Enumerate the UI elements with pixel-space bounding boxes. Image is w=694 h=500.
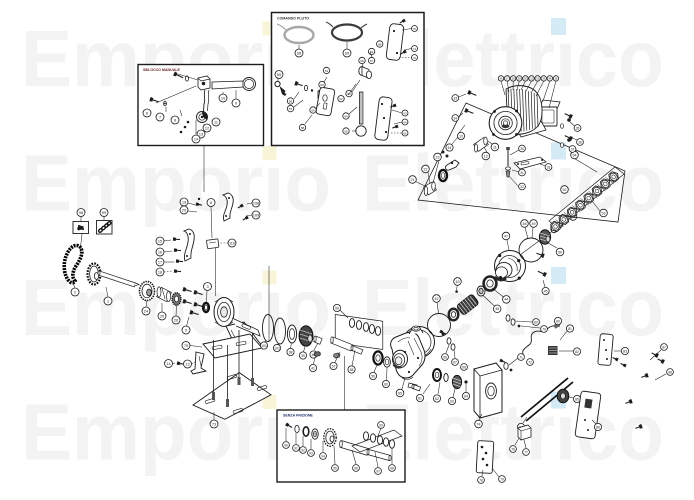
svg-text:32: 32 — [520, 185, 524, 189]
svg-text:79: 79 — [500, 477, 504, 481]
svg-text:68: 68 — [378, 42, 382, 46]
svg-text:57: 57 — [289, 107, 293, 111]
svg-text:76: 76 — [511, 447, 515, 451]
svg-text:72: 72 — [528, 360, 532, 364]
svg-text:63: 63 — [403, 111, 407, 115]
svg-text:109: 109 — [253, 213, 259, 217]
svg-text:41: 41 — [311, 366, 315, 370]
svg-text:20: 20 — [182, 208, 186, 212]
svg-text:78: 78 — [479, 478, 483, 482]
svg-text:49: 49 — [531, 222, 535, 226]
svg-text:99: 99 — [102, 211, 106, 215]
svg-text:70: 70 — [413, 27, 417, 31]
svg-text:62: 62 — [339, 97, 343, 101]
svg-text:24: 24 — [144, 309, 148, 313]
svg-text:34: 34 — [454, 116, 458, 120]
svg-text:30: 30 — [520, 147, 524, 151]
svg-text:35: 35 — [576, 126, 580, 130]
svg-text:48: 48 — [522, 222, 526, 226]
svg-text:64: 64 — [344, 114, 348, 118]
svg-text:31: 31 — [520, 171, 524, 175]
svg-text:88: 88 — [668, 370, 672, 374]
svg-text:33: 33 — [547, 165, 551, 169]
svg-text:99: 99 — [379, 423, 383, 427]
svg-text:53: 53 — [601, 211, 605, 215]
svg-text:18: 18 — [158, 270, 162, 274]
svg-text:73: 73 — [212, 422, 216, 426]
svg-text:69: 69 — [534, 320, 538, 324]
svg-text:67: 67 — [370, 59, 374, 63]
svg-text:11: 11 — [493, 145, 497, 149]
svg-text:68: 68 — [462, 365, 466, 369]
svg-text:72: 72 — [413, 56, 417, 60]
svg-text:87: 87 — [662, 345, 666, 349]
svg-text:3: 3 — [206, 285, 208, 289]
svg-text:6: 6 — [146, 111, 148, 115]
svg-text:13: 13 — [185, 362, 189, 366]
svg-text:14: 14 — [194, 137, 198, 141]
svg-text:54: 54 — [572, 153, 576, 157]
svg-text:71: 71 — [413, 47, 417, 51]
svg-text:63: 63 — [450, 399, 454, 403]
svg-text:45: 45 — [495, 307, 499, 311]
svg-text:69: 69 — [345, 51, 349, 55]
svg-text:58: 58 — [301, 126, 305, 130]
svg-text:108: 108 — [253, 201, 259, 205]
svg-text:65: 65 — [403, 131, 407, 135]
svg-text:90: 90 — [284, 443, 288, 447]
svg-text:63: 63 — [347, 92, 351, 96]
svg-text:5: 5 — [185, 328, 187, 332]
svg-text:64: 64 — [464, 394, 468, 398]
svg-text:66: 66 — [443, 355, 447, 359]
svg-text:37: 37 — [571, 147, 575, 151]
svg-text:110: 110 — [229, 241, 235, 245]
svg-text:98: 98 — [79, 211, 83, 215]
svg-text:60: 60 — [384, 382, 388, 386]
svg-text:17: 17 — [158, 260, 162, 264]
svg-text:62: 62 — [435, 397, 439, 401]
svg-text:Elettrıco: Elettrıco — [362, 388, 664, 477]
svg-text:13: 13 — [459, 134, 463, 138]
svg-text:65: 65 — [344, 129, 348, 133]
svg-text:68: 68 — [297, 51, 301, 55]
svg-text:10: 10 — [221, 96, 225, 100]
svg-text:23: 23 — [435, 155, 439, 159]
svg-text:58: 58 — [350, 368, 354, 372]
svg-text:33: 33 — [454, 96, 458, 100]
svg-text:71: 71 — [519, 355, 523, 359]
svg-text:96: 96 — [354, 466, 358, 470]
svg-text:21: 21 — [410, 178, 414, 182]
svg-text:11: 11 — [214, 120, 218, 124]
svg-text:55: 55 — [277, 73, 281, 77]
svg-text:65: 65 — [398, 391, 402, 395]
svg-text:1: 1 — [107, 299, 109, 303]
svg-text:61: 61 — [325, 69, 329, 73]
svg-text:82: 82 — [575, 350, 579, 354]
svg-text:2: 2 — [74, 290, 76, 294]
svg-text:60: 60 — [320, 83, 324, 87]
svg-text:83: 83 — [623, 349, 627, 353]
svg-text:95: 95 — [333, 466, 337, 470]
svg-text:8: 8 — [174, 118, 176, 122]
svg-text:52: 52 — [562, 188, 566, 192]
svg-text:42: 42 — [434, 297, 438, 301]
svg-text:57: 57 — [332, 364, 336, 368]
svg-text:16: 16 — [158, 250, 162, 254]
svg-text:67: 67 — [453, 360, 457, 364]
svg-text:39: 39 — [301, 354, 305, 358]
svg-text:38: 38 — [289, 350, 293, 354]
svg-text:SBLOCCO MANUALE: SBLOCCO MANUALE — [143, 68, 181, 72]
svg-text:15: 15 — [158, 239, 162, 243]
svg-text:22: 22 — [423, 167, 427, 171]
svg-text:50: 50 — [558, 250, 562, 254]
svg-text:56: 56 — [335, 306, 339, 310]
svg-text:98: 98 — [390, 466, 394, 470]
svg-text:36: 36 — [578, 140, 582, 144]
svg-text:102: 102 — [274, 346, 280, 350]
svg-text:19: 19 — [182, 200, 186, 204]
svg-text:12: 12 — [484, 154, 488, 158]
svg-text:56: 56 — [289, 99, 293, 103]
svg-text:101: 101 — [261, 344, 267, 348]
svg-text:12: 12 — [205, 126, 209, 130]
svg-text:45: 45 — [544, 289, 548, 293]
svg-text:59: 59 — [371, 374, 375, 378]
svg-text:25: 25 — [160, 314, 164, 318]
svg-text:77: 77 — [524, 450, 528, 454]
svg-text:64: 64 — [403, 120, 407, 124]
svg-text:85: 85 — [575, 397, 579, 401]
svg-text:66: 66 — [360, 59, 364, 63]
svg-text:80: 80 — [556, 319, 560, 323]
svg-text:44: 44 — [504, 298, 508, 302]
svg-text:70: 70 — [542, 327, 546, 331]
svg-text:SENZA FRIZIONE: SENZA FRIZIONE — [283, 414, 313, 418]
svg-text:92: 92 — [301, 448, 305, 452]
svg-text:47: 47 — [504, 234, 508, 238]
svg-text:93: 93 — [309, 451, 313, 455]
svg-text:14: 14 — [166, 362, 170, 366]
svg-text:75: 75 — [184, 344, 188, 348]
svg-text:7: 7 — [159, 115, 161, 119]
svg-text:Emporıo: Emporıo — [21, 139, 331, 228]
svg-text:81: 81 — [568, 327, 572, 331]
svg-text:91: 91 — [294, 446, 298, 450]
svg-text:94: 94 — [321, 454, 325, 458]
svg-text:9: 9 — [235, 101, 237, 105]
svg-text:COMANDO PLUTO: COMANDO PLUTO — [277, 17, 309, 21]
svg-text:86: 86 — [596, 425, 600, 429]
svg-text:8: 8 — [210, 201, 212, 205]
svg-text:26: 26 — [174, 318, 178, 322]
svg-text:43: 43 — [455, 280, 459, 284]
svg-text:59: 59 — [311, 108, 315, 112]
svg-text:13: 13 — [199, 132, 203, 136]
svg-text:14: 14 — [448, 146, 452, 150]
svg-text:61: 61 — [418, 396, 422, 400]
svg-text:97: 97 — [376, 469, 380, 473]
svg-text:74: 74 — [476, 422, 480, 426]
